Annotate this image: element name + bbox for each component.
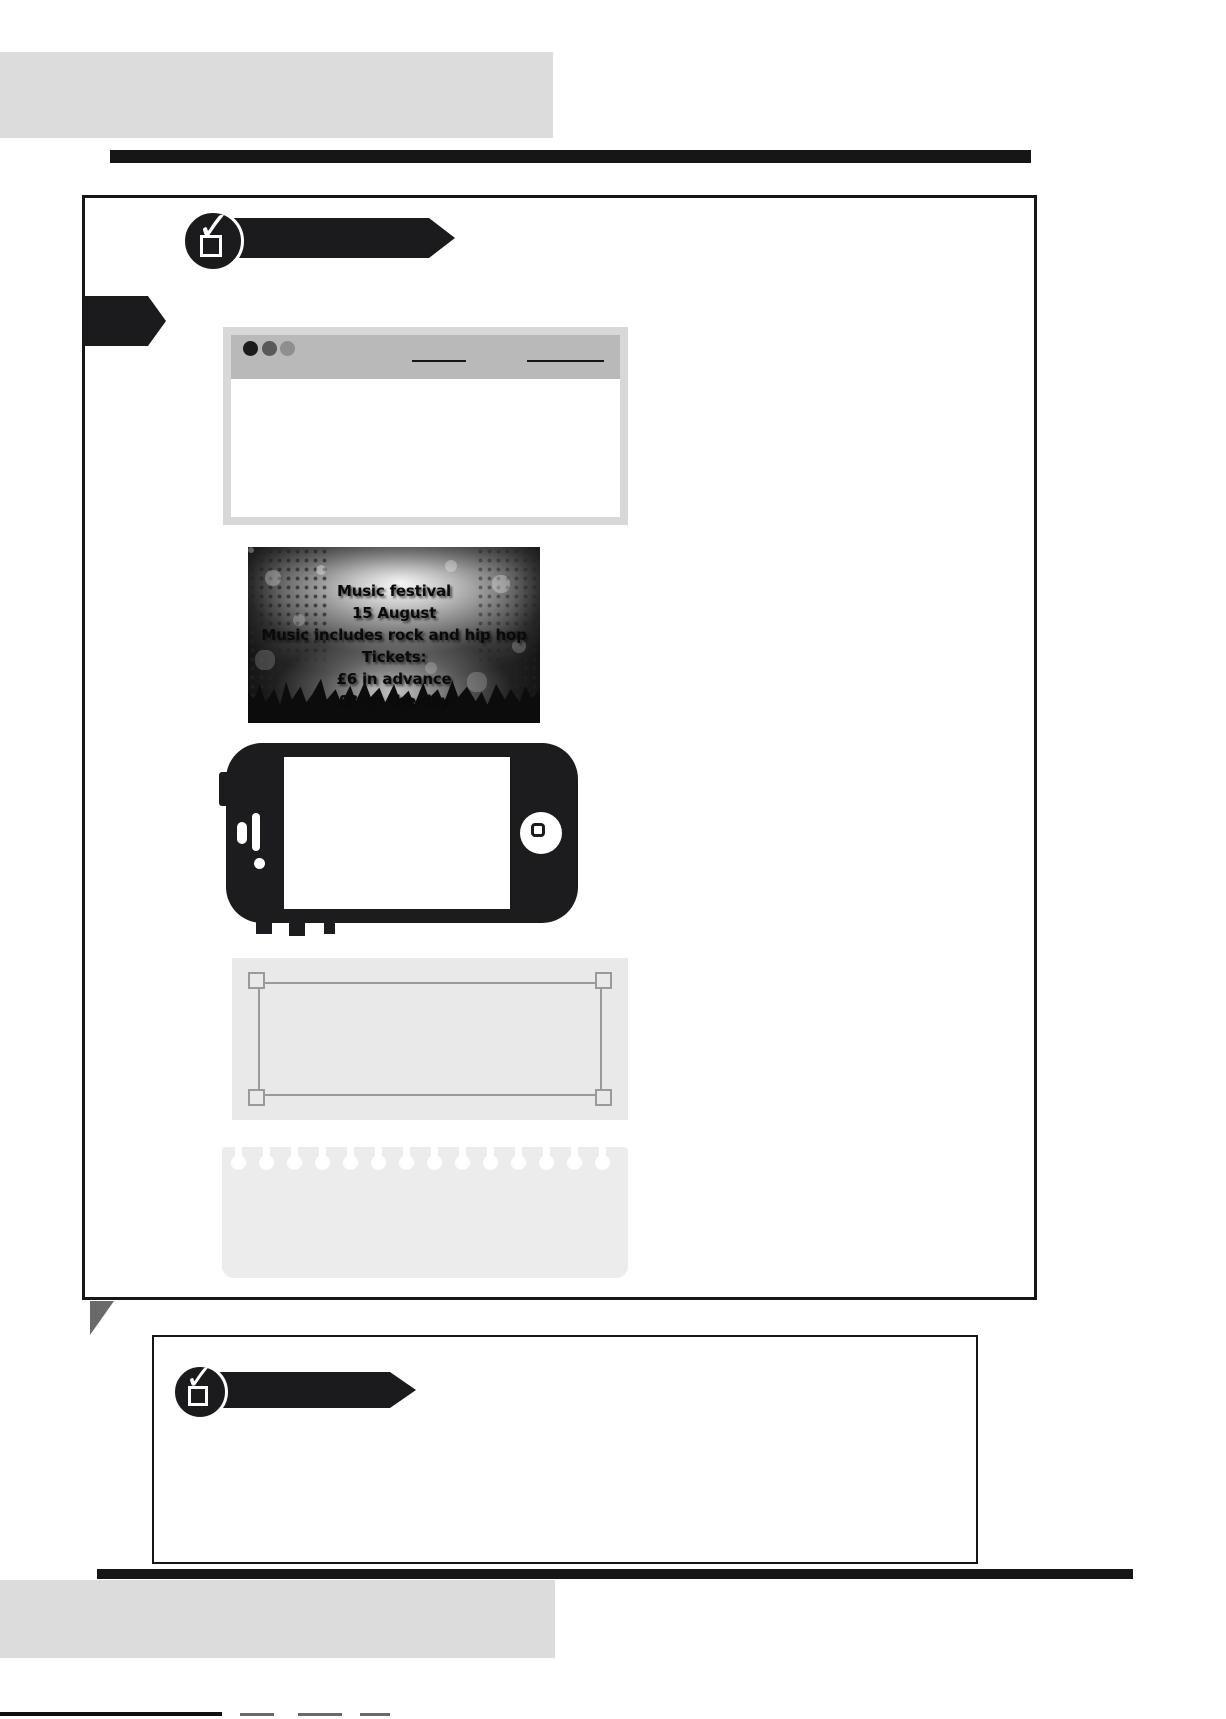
bottom-gray-block — [0, 1580, 555, 1658]
poster-line-date: 15 August — [248, 602, 540, 624]
window-dot-light-icon — [280, 341, 295, 356]
phone-home-button — [520, 812, 562, 854]
binder-hole-icon — [539, 1147, 554, 1171]
binder-hole-icon — [343, 1147, 358, 1171]
corner-ornament-icon — [248, 972, 265, 989]
binder-hole-icon — [483, 1147, 498, 1171]
bottom-section-box — [152, 1335, 978, 1564]
binder-hole-icon — [455, 1147, 470, 1171]
binder-hole-icon — [259, 1147, 274, 1171]
phone-speaker-icon — [237, 822, 247, 844]
poster-sparkles — [248, 547, 254, 553]
top-gray-block — [0, 52, 553, 138]
page: ✓ Music festival 15 August Music include… — [0, 0, 1226, 1719]
binder-hole-icon — [399, 1147, 414, 1171]
page-cut-marks — [360, 1713, 390, 1716]
checkmark-icon: ✓ — [185, 1361, 214, 1395]
poster-line-title: Music festival — [248, 580, 540, 602]
corner-ornament-icon — [595, 1089, 612, 1106]
checklist-banner-bottom — [204, 1372, 416, 1408]
checkmark-icon: ✓ — [197, 207, 231, 247]
browser-window-mockup — [223, 327, 628, 525]
window-dot-dark-icon — [243, 341, 258, 356]
poster-line-price-day: £8 on the day — [248, 690, 540, 712]
binder-hole-icon — [231, 1147, 246, 1171]
checkbox-emblem-top: ✓ — [182, 210, 244, 272]
notebook-paper-panel — [222, 1147, 628, 1278]
corner-ornament-icon — [595, 972, 612, 989]
browser-header-bar — [231, 335, 620, 379]
binder-hole-icon — [315, 1147, 330, 1171]
page-cut-marks — [298, 1713, 342, 1716]
binder-hole-icon — [427, 1147, 442, 1171]
binder-hole-icon — [287, 1147, 302, 1171]
page-cut-marks — [240, 1713, 274, 1716]
bottom-black-bar — [97, 1569, 1133, 1579]
poster-text: Music festival 15 August Music includes … — [248, 580, 540, 712]
window-dot-medium-icon — [262, 341, 277, 356]
page-cut-line — [0, 1712, 222, 1716]
phone-screen — [284, 757, 510, 909]
checklist-banner-top — [218, 218, 455, 258]
phone-camera-icon — [254, 858, 265, 869]
phone-earpiece-icon — [252, 813, 260, 851]
fold-shadow-triangle — [90, 1301, 114, 1335]
home-square-icon — [531, 823, 545, 837]
binder-hole-icon — [371, 1147, 386, 1171]
top-black-bar — [110, 150, 1031, 163]
poster-line-genres: Music includes rock and hip hop — [248, 624, 540, 646]
corner-ornament-icon — [248, 1089, 265, 1106]
poster-line-tickets: Tickets: — [248, 646, 540, 668]
poster-line-price-advance: £6 in advance — [248, 668, 540, 690]
binder-hole-icon — [567, 1147, 582, 1171]
music-festival-poster: Music festival 15 August Music includes … — [248, 547, 540, 723]
certificate-frame-panel — [232, 958, 628, 1120]
browser-nav-link-placeholder — [527, 360, 604, 362]
binder-hole-icon — [595, 1147, 610, 1171]
checkbox-emblem-bottom: ✓ — [172, 1364, 228, 1420]
ornamental-border — [258, 982, 602, 1096]
binder-hole-icon — [511, 1147, 526, 1171]
browser-nav-link-placeholder — [412, 360, 466, 362]
